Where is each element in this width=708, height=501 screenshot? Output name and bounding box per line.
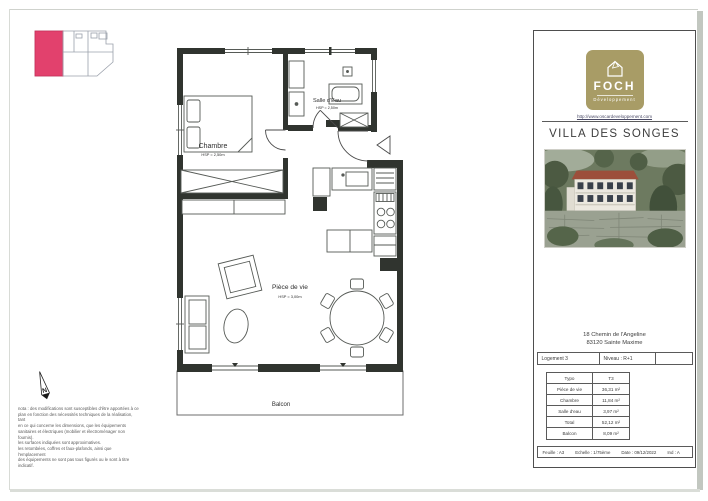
table-row: Salle d'eau 3,97 m² — [547, 406, 629, 417]
row-label: Total — [547, 417, 593, 427]
dining-table — [330, 291, 384, 345]
brand-name: FOCH — [594, 79, 636, 93]
room-labels: Chambre HSP = 2,50m Salle d'Eau HSP = 2,… — [199, 98, 341, 408]
address-line-2: 83120 Sainte Maxime — [534, 340, 695, 348]
room-hsp-chambre: HSP = 2,50m — [201, 152, 224, 157]
title-block-panel: FOCH Développement http://www.oscardevel… — [533, 30, 696, 468]
table-row: Chambre 11,84 m² — [547, 395, 629, 406]
room-label-salle-eau: Salle d'Eau — [313, 98, 341, 104]
foch-logo: FOCH Développement — [586, 50, 644, 110]
sheet-info-row: Feuille : A3 Echelle : 1/75ème Date : 09… — [537, 446, 693, 458]
row-label: Chambre — [547, 395, 593, 405]
note-line: en ce qui concerne les dimensions, que l… — [18, 423, 140, 429]
fridge — [313, 168, 330, 196]
project-title: VILLA DES SONGES — [534, 128, 695, 140]
address-line-1: 18 Chemin de l'Angeline — [534, 332, 695, 340]
table-row: Balcon 8,09 m² — [547, 428, 629, 439]
row-label: Balcon — [547, 428, 593, 439]
legal-note: nota : des modifications sont susceptibl… — [18, 406, 140, 469]
note-line: nota : des modifications sont susceptibl… — [18, 406, 140, 412]
brand-subtitle: Développement — [593, 97, 635, 102]
pouf — [221, 307, 250, 344]
kitchen-sink — [346, 172, 368, 186]
unit-label: Logement 3 — [538, 353, 600, 364]
balcony-outline — [177, 371, 403, 415]
row-label: Salle d'eau — [547, 406, 593, 416]
sheet-format: Feuille : A3 — [543, 450, 565, 455]
highlighted-unit — [35, 31, 63, 76]
empty-cell — [656, 353, 692, 364]
note-line: les retombées, coffres et faux-plafonds,… — [18, 446, 140, 457]
project-address: 18 Chemin de l'Angeline 83120 Sainte Max… — [534, 332, 695, 347]
row-value: 8,09 m² — [593, 428, 629, 439]
website-divider — [542, 121, 688, 122]
room-hsp-salle-eau: HSP = 2,50m — [316, 106, 338, 110]
surface-table: Typo T3 Pièce de vie 36,31 m² Chambre 11… — [546, 372, 630, 440]
note-line: des équipements ne sont pas tous figurés… — [18, 457, 140, 463]
sheet-date: Date : 09/12/2022 — [621, 450, 656, 455]
room-hsp-piece-de-vie: HSP = 3,00m — [278, 294, 301, 299]
note-line: indicatif. — [18, 463, 140, 469]
table-row: Typo T3 — [547, 373, 629, 384]
house-icon — [604, 59, 626, 78]
key-plan — [35, 31, 113, 76]
row-value: 36,31 m² — [593, 384, 629, 394]
website-link: http://www.oscardeveloppement.com — [534, 114, 695, 119]
row-value: 52,12 m² — [593, 417, 629, 427]
brand-divider — [597, 95, 633, 96]
sheet-index: Ind : A — [667, 450, 679, 455]
furniture — [181, 61, 396, 357]
row-value: T3 — [593, 373, 629, 383]
room-label-chambre: Chambre — [199, 143, 228, 150]
scanned-plan-page: Chambre HSP = 2,50m Salle d'Eau HSP = 2,… — [0, 0, 708, 501]
unit-level-row: Logement 3 Niveau : R+1 — [537, 352, 693, 365]
room-label-piece-de-vie: Pièce de vie — [272, 284, 308, 291]
table-row: Pièce de vie 36,31 m² — [547, 384, 629, 395]
note-line: sanitaires et électriques (mobilier et é… — [18, 429, 140, 440]
note-line: plan en fonction des nécessités techniqu… — [18, 412, 140, 423]
row-value: 11,84 m² — [593, 395, 629, 405]
row-value: 3,97 m² — [593, 406, 629, 416]
table-row: Total 52,12 m² — [547, 417, 629, 428]
row-label: Typo — [547, 373, 593, 383]
north-arrow: N — [36, 371, 51, 400]
sheet-scale: Echelle : 1/75ème — [575, 450, 610, 455]
room-label-balcon: Balcon — [272, 402, 290, 408]
row-label: Pièce de vie — [547, 384, 593, 394]
villa-photo — [544, 149, 686, 248]
level-label: Niveau : R+1 — [600, 353, 656, 364]
